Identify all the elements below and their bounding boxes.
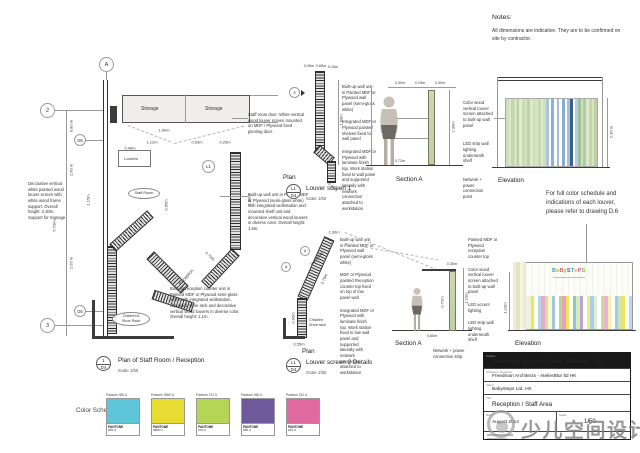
louver-wall-hatch	[230, 152, 241, 250]
leader-line	[586, 224, 587, 262]
pantone-code: 3965 U	[153, 428, 163, 432]
room-label-lockers: Lockers	[124, 156, 138, 161]
elevation-floor-line	[508, 330, 636, 331]
door-swing-line	[174, 126, 244, 144]
room-label-storage-1: Storage	[141, 106, 159, 112]
pantone-color-chip	[151, 398, 185, 424]
pantone-name: Pantone 374 U	[196, 393, 230, 397]
tag-number: L1	[287, 359, 300, 367]
elevation1-louver-stripes	[505, 98, 598, 167]
view-label-elevation: Elevation	[515, 340, 541, 347]
elevation-side-line	[497, 77, 498, 167]
project-name: Babysteps Interior Fitouts, Midlevels , …	[492, 359, 602, 365]
drawing-tag: L1 D4	[286, 358, 301, 373]
view-label-section-a: Section A	[395, 340, 422, 347]
l-wall	[283, 318, 286, 338]
architect-name: Freedman Architects - AtelierBlur ltd HK	[492, 374, 577, 379]
dim-label: 0.72m	[395, 159, 406, 163]
watermark-badge-blob	[496, 421, 508, 433]
view-arrow-icon	[301, 90, 305, 96]
dim-label: 0.80 m	[69, 120, 74, 132]
view-marker-a: A	[289, 87, 300, 98]
annotation-network: Network + power connection strip	[433, 348, 469, 359]
dim-label: 0.30m	[395, 81, 406, 85]
color-note-line-2: indications of each louver,	[546, 199, 638, 208]
pantone-swatch-card: Pantone 374 U PANTONE 374 U	[196, 393, 230, 436]
pantone-name: Pantone 3965 U	[151, 393, 185, 397]
tag-number: L1	[287, 185, 300, 193]
drawing-scale: Scale 1/50	[306, 196, 326, 201]
dim-label: 6.70m	[52, 220, 57, 231]
pantone-color-chip	[196, 398, 230, 424]
section-back-wall	[371, 88, 372, 165]
annotation: LED strip wall lighting underneath shelf	[463, 141, 493, 164]
dim-label: 1.10m	[503, 302, 508, 313]
shoe-rack-line-2: Shoe Rack	[122, 319, 141, 324]
section-low-wall	[449, 271, 456, 331]
louver-wall-hatch	[109, 210, 154, 252]
pantone-swatch-card: Pantone 305 U PANTONE 305 U	[106, 393, 140, 436]
dim-label: 1.30m	[328, 230, 339, 235]
storage-divider	[185, 95, 186, 123]
pantone-swatch-card: Pantone 265 U PANTONE 265 U	[241, 393, 275, 436]
pantone-code: 231 U	[288, 428, 296, 432]
counter-top-line	[422, 269, 456, 271]
pantone-swatch-card: Pantone 3965 U PANTONE 3965 U	[151, 393, 185, 436]
room-label-storage-2: Storage	[205, 106, 223, 112]
grid-marker-a: A	[99, 57, 114, 72]
dim-label: 2.30m	[451, 121, 456, 132]
leader-line	[220, 196, 248, 197]
louver2-annotations-right: Painted MDF or Plywood reception counter…	[468, 237, 498, 350]
view-marker-a: A	[281, 262, 291, 272]
pantone-foot-label: PANTONE 3965 U	[151, 424, 185, 436]
dim-label: 0.30m	[435, 81, 446, 85]
pantone-swatch-card: Pantone 231 U PANTONE 231 U	[286, 393, 320, 436]
elevation-top-line	[497, 77, 603, 78]
pantone-code: 265 U	[243, 428, 251, 432]
annotation-wall-unit: Built-up wall unit in Painted MDF or Ply…	[248, 192, 310, 232]
column	[110, 106, 117, 123]
dim-label: 0.15m	[415, 81, 426, 85]
annotation: MDF or Plywood painted Reception counter…	[340, 272, 374, 300]
color-schedule-note: For full color schedule and indications …	[546, 190, 638, 217]
sheet-title: Reception / Staff Area	[492, 401, 552, 408]
leader-line	[232, 118, 248, 119]
pantone-name: Pantone 265 U	[241, 393, 275, 397]
dim-label: 1.60 m	[69, 164, 74, 176]
field-label-project: Project	[486, 354, 495, 358]
person-figure	[408, 287, 426, 332]
dim-label: 2.30 m	[609, 126, 614, 138]
louver-stripe	[523, 262, 526, 330]
dim-label: 1.15m	[86, 194, 91, 205]
logo-letter: S	[581, 268, 585, 274]
dim-label: 0.90m	[291, 312, 296, 323]
dim-chain-line	[66, 110, 67, 336]
pantone-color-chip	[106, 398, 140, 424]
field-label-title: Title	[486, 396, 492, 400]
title-block-row-client: Client Babysteps Ltd. HK	[484, 381, 630, 394]
annotation: Color wood vertical louver screen attach…	[468, 267, 498, 295]
elevation-side-line	[602, 77, 603, 167]
view-label-elevation: Elevation	[498, 177, 524, 184]
dim-label: 0.25m	[219, 140, 230, 145]
tag-sheet: D4	[97, 365, 110, 371]
wall-line	[250, 95, 278, 96]
title-block-header: Project Babysteps Interior Fitouts, Midl…	[484, 353, 630, 368]
babysteps-logo: BaBySTePS	[552, 268, 585, 274]
dim-label: 0.30m	[447, 262, 458, 266]
drawing-tag: 1 D4	[96, 356, 111, 371]
grid-marker-2: 2	[40, 103, 55, 118]
dim-label: 2.70m	[319, 273, 328, 285]
tag-sheet: D4	[287, 367, 300, 373]
annotation-reception-counter: Built-up reception counter unit in Paint…	[170, 286, 240, 320]
tag-number: 1	[97, 357, 110, 365]
pantone-name: Pantone 231 U	[286, 393, 320, 397]
louver1-plan-hatch	[315, 71, 325, 151]
dim-label: 0.65m	[316, 64, 327, 68]
section-louver-wall	[428, 90, 435, 165]
pantone-color-chip	[241, 398, 275, 424]
drawing-tag: L1 D4	[286, 184, 301, 199]
dim-label: 1.60m	[158, 128, 169, 133]
grid-leader	[55, 110, 103, 111]
footer-text-bar	[487, 438, 507, 440]
drawing-scale: Scale 1/50	[306, 370, 326, 375]
dim-label: 0.60m	[427, 334, 438, 338]
annotation-staff-door: Staff room door: White vertical wood lou…	[248, 112, 306, 135]
louver-stripe	[629, 296, 633, 329]
l-wall	[283, 336, 305, 339]
title-block-row-title: Title Reception / Staff Area	[484, 394, 630, 411]
louver2-plan-hatch	[297, 298, 307, 338]
section-floor-line	[392, 330, 472, 331]
dim-label: 0.65m	[164, 199, 169, 210]
annotation: Network + power connection point	[463, 177, 493, 200]
shoe-rack-label: Children Shoe rack	[309, 318, 333, 328]
color-note-line-3: please refer to drawing D.6	[546, 208, 638, 217]
shoe-rack-line-2: Shoe rack	[309, 323, 333, 328]
color-note-line-1: For full color schedule and	[546, 190, 638, 199]
logo-tagline-line	[553, 277, 585, 278]
client-name: Babysteps Ltd. HK	[492, 387, 532, 392]
louver-stripe	[594, 99, 597, 166]
elevation-floor-line	[492, 167, 610, 168]
dim-label: 2.65 m	[69, 257, 74, 269]
annotation: Integrated MDF or Plywood with laminate …	[340, 308, 374, 376]
dim-line	[509, 272, 510, 330]
room-label-staff-room: Staff Room	[128, 188, 160, 199]
person-figure	[376, 95, 402, 167]
pantone-code: 305 U	[108, 428, 116, 432]
room-label-shoe-rack: Children's Shoe Rack	[112, 312, 150, 326]
tag-l1-marker: L1	[202, 160, 215, 173]
view-label-plan: Plan	[283, 174, 296, 181]
elevation2-louver-stripes	[527, 296, 632, 329]
dim-line	[449, 90, 450, 165]
louver2-annotations-left: Built-up wall unit in Painted MDF or Ply…	[340, 237, 374, 383]
pantone-color-chip	[286, 398, 320, 424]
dim-line	[607, 98, 608, 167]
view-marker-a: A	[300, 246, 310, 256]
drawing-sheet: Notes: All dimensions are indicative. Th…	[0, 0, 640, 453]
dim-line	[388, 87, 456, 88]
dim-label: 0.63m	[191, 140, 202, 145]
pantone-foot-label: PANTONE 231 U	[286, 424, 320, 436]
elevation-top-line	[497, 80, 603, 81]
notes-title: Notes:	[492, 14, 512, 21]
drawing-title: Plan of Staff Room / Reception	[118, 357, 204, 364]
dim-label: 0.05m	[304, 64, 315, 68]
grid-marker-3: 3	[40, 318, 55, 333]
grid-marker-d6: D6	[74, 134, 86, 146]
l-wall	[92, 336, 174, 339]
annotation: Color wood vertical louver screen attach…	[463, 100, 493, 128]
louver1-annotations-right: Color wood vertical louver screen attach…	[463, 100, 493, 213]
grid-line	[106, 72, 107, 80]
annotation: LED accent lighting	[468, 302, 498, 313]
dim-label: 0.72m	[440, 296, 445, 307]
pantone-foot-label: PANTONE 305 U	[106, 424, 140, 436]
annotation-louver-screen: Decorative vertical white painted wood l…	[28, 181, 70, 221]
pantone-name: Pantone 305 U	[106, 393, 140, 397]
l-wall	[92, 300, 95, 339]
pantone-swatches: Pantone 305 U PANTONE 305 U Pantone 3965…	[106, 393, 320, 436]
grid-leader	[55, 325, 103, 326]
dim-label: 1.12m	[146, 140, 157, 145]
watermark-text: 少儿空间设计	[521, 414, 640, 443]
pantone-foot-label: PANTONE 265 U	[241, 424, 275, 436]
dim-label: 0.55m	[293, 342, 304, 347]
notes-line-2: site by contractor.	[492, 36, 638, 43]
dim-label: 0.73m	[204, 250, 216, 261]
louver1-plan-hatch	[327, 161, 336, 183]
grid-marker-d5: D5	[74, 305, 86, 317]
dim-label: 0.15m	[328, 65, 339, 69]
annotation: Painted MDF or Plywood reception counter…	[468, 237, 498, 260]
view-label-section-a: Section A	[396, 176, 423, 183]
title-block-row-architect: Architect / Designer Freedman Architects…	[484, 368, 630, 381]
staff-room-text: Staff Room	[135, 191, 154, 196]
notes-line-1: All dimensions are indicative. They are …	[492, 28, 638, 35]
pantone-code: 374 U	[198, 428, 206, 432]
pantone-foot-label: PANTONE 374 U	[196, 424, 230, 436]
view-label-plan: Plan	[302, 348, 315, 355]
annotation: LED strip wall lighting underneath shelf	[468, 320, 498, 343]
elevation2-left-stripes	[513, 262, 526, 330]
drawing-scale: Scale 1/50	[118, 368, 138, 373]
